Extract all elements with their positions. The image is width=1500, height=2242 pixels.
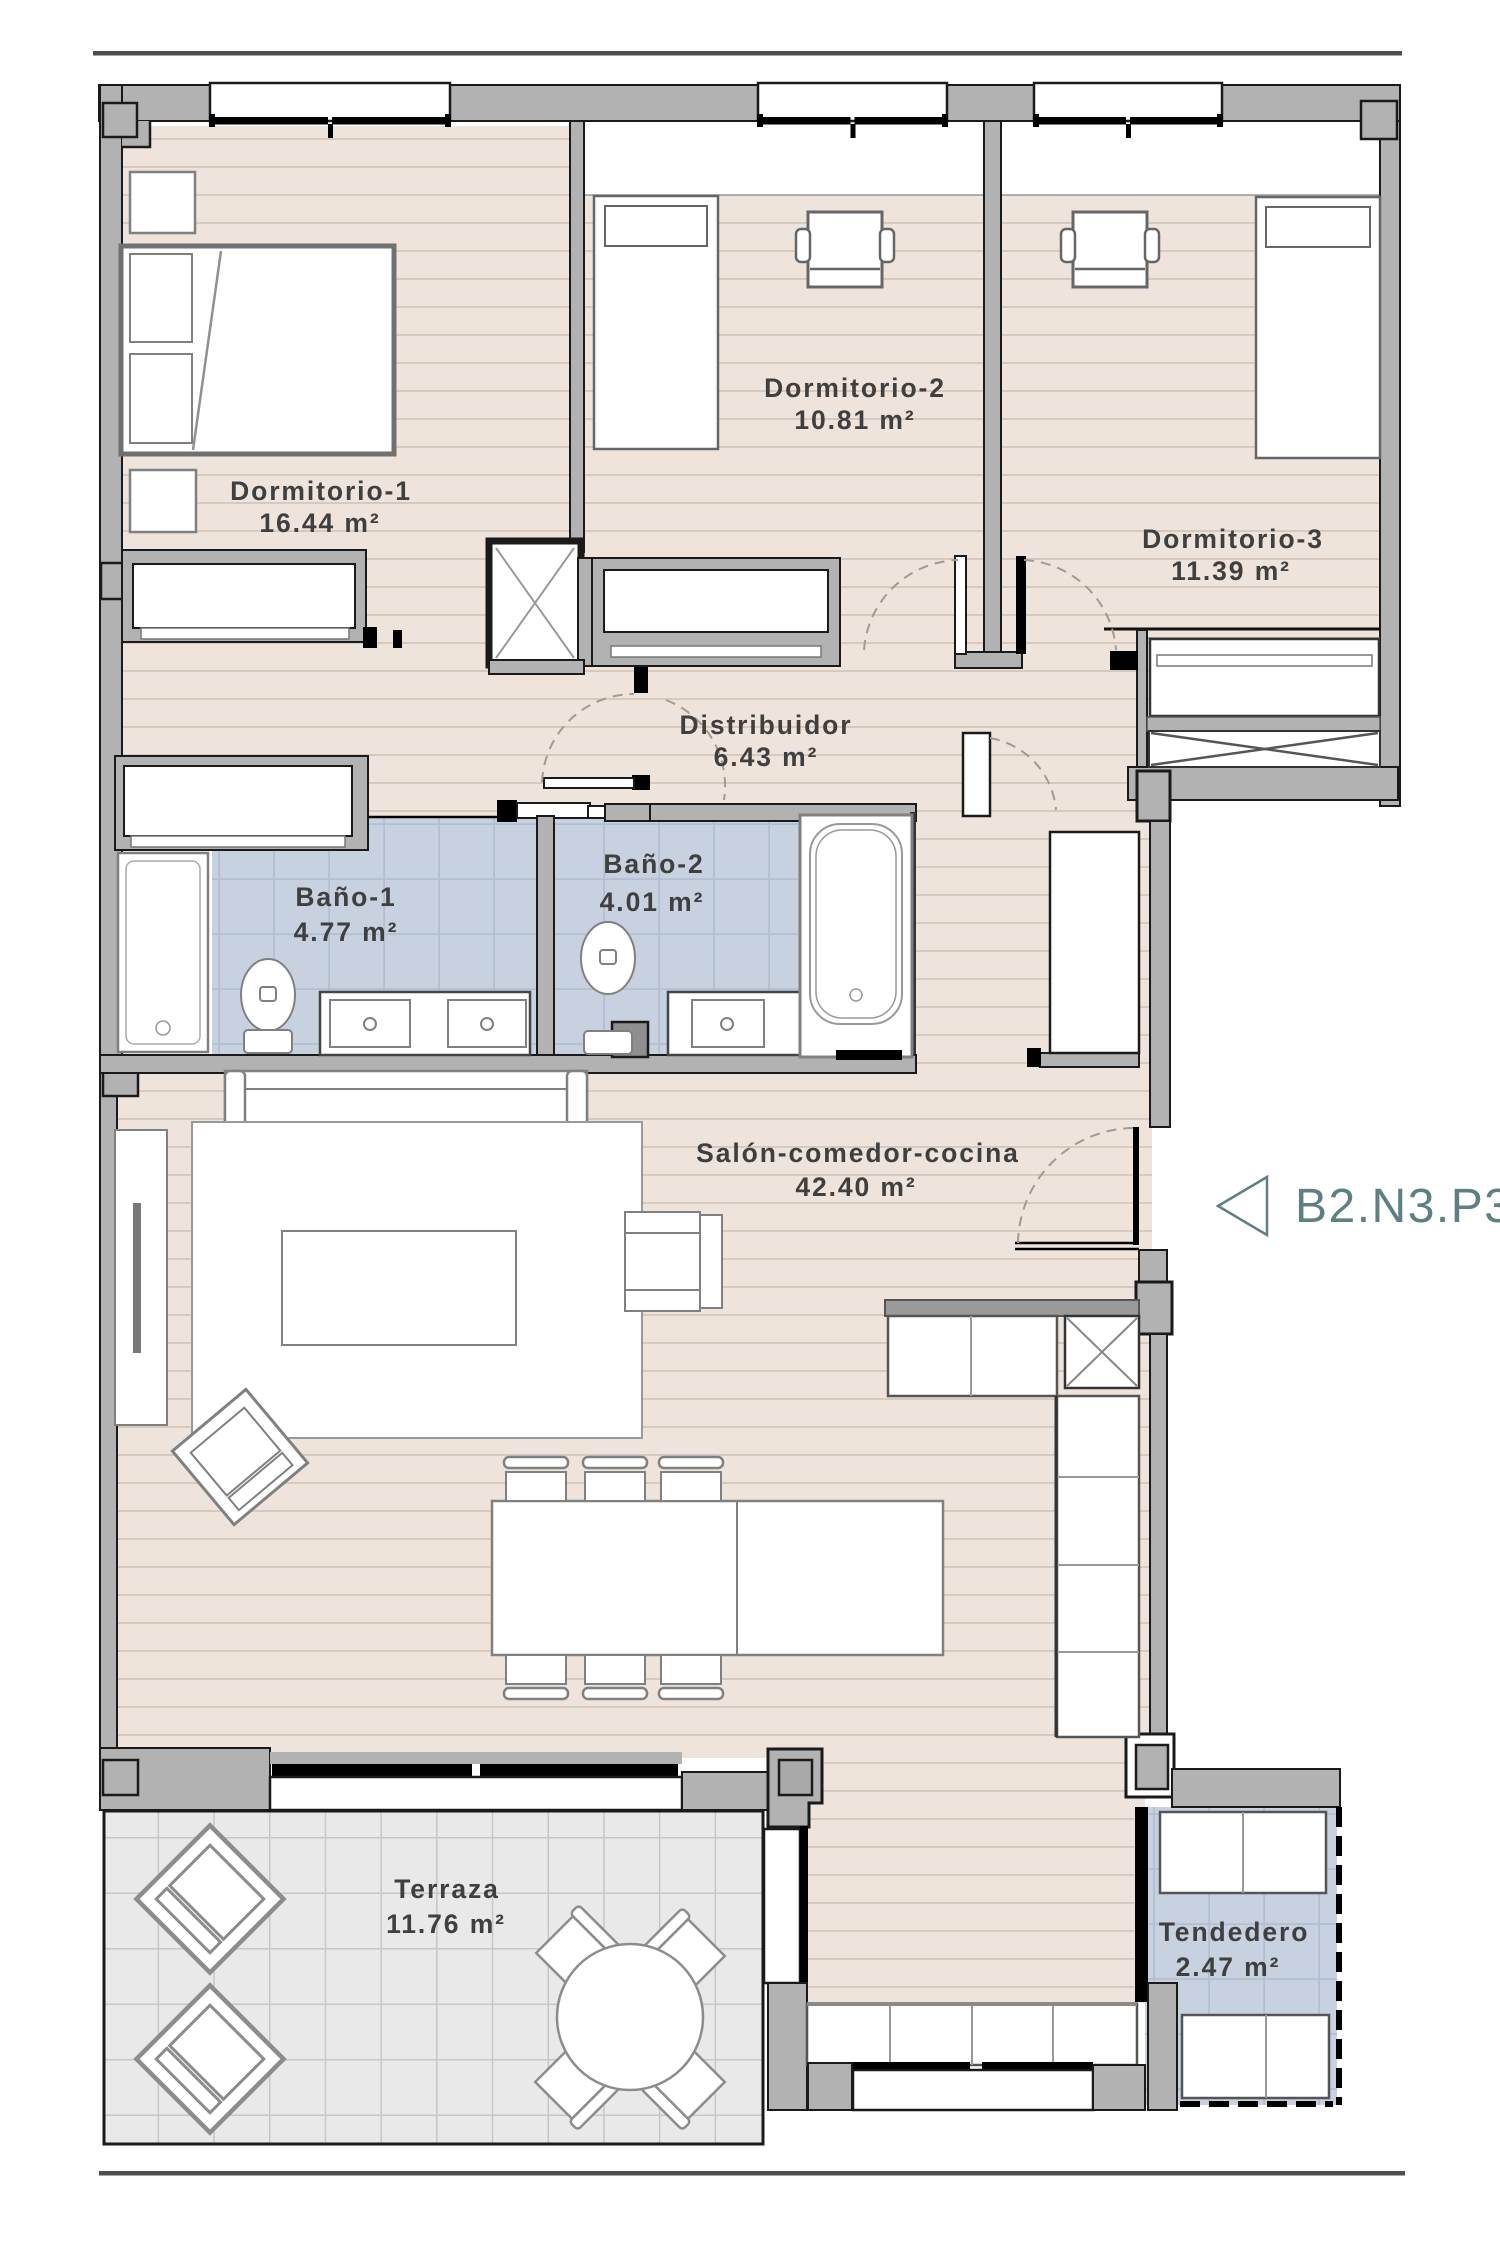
svg-text:2.47 m²: 2.47 m²: [1176, 1952, 1281, 1982]
svg-text:11.39 m²: 11.39 m²: [1171, 556, 1291, 586]
svg-text:10.81 m²: 10.81 m²: [794, 405, 915, 435]
svg-text:Terraza: Terraza: [394, 1874, 500, 1904]
svg-text:Salón-comedor-cocina: Salón-comedor-cocina: [696, 1138, 1020, 1168]
svg-text:4.77 m²: 4.77 m²: [294, 917, 399, 947]
svg-text:4.01 m²: 4.01 m²: [600, 887, 705, 917]
svg-text:6.43 m²: 6.43 m²: [714, 742, 819, 772]
svg-text:Distribuidor: Distribuidor: [680, 710, 853, 740]
svg-text:Dormitorio-3: Dormitorio-3: [1142, 524, 1324, 554]
svg-text:Tendedero: Tendedero: [1159, 1917, 1310, 1947]
svg-text:B2.N3.P3: B2.N3.P3: [1295, 1180, 1500, 1233]
svg-text:Baño-1: Baño-1: [295, 882, 396, 912]
svg-text:Dormitorio-2: Dormitorio-2: [764, 373, 946, 403]
svg-text:42.40 m²: 42.40 m²: [795, 1172, 916, 1202]
svg-text:11.76 m²: 11.76 m²: [386, 1909, 506, 1939]
svg-text:16.44 m²: 16.44 m²: [259, 508, 380, 538]
svg-text:Baño-2: Baño-2: [603, 849, 704, 879]
svg-text:Dormitorio-1: Dormitorio-1: [230, 476, 412, 506]
